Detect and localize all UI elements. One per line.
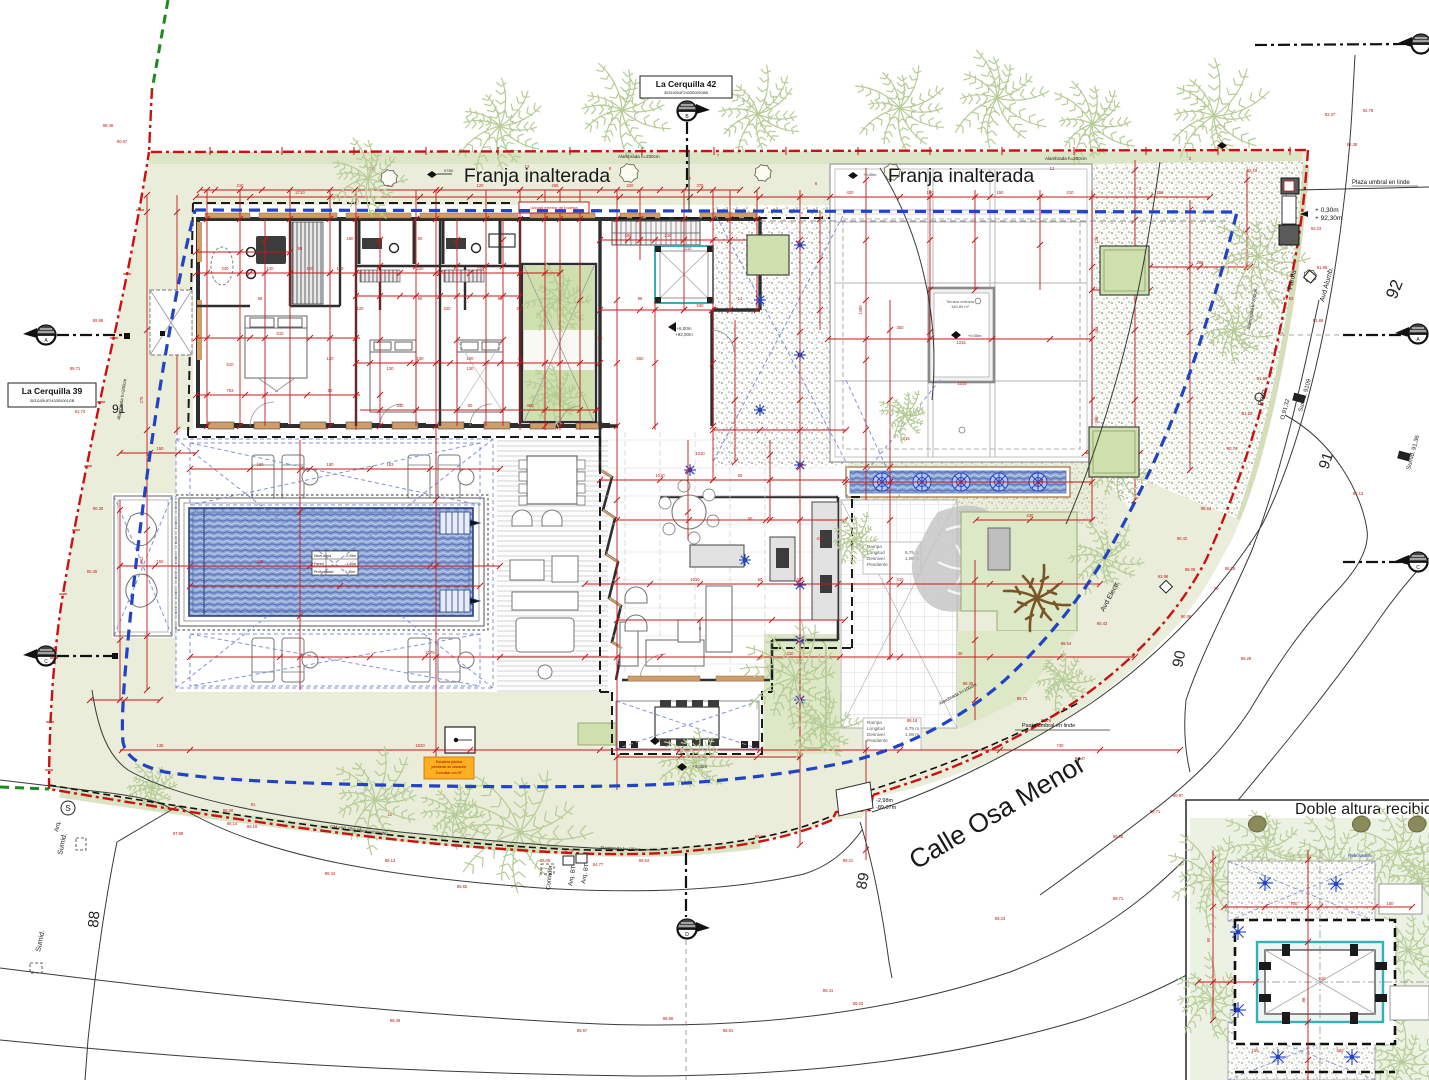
svg-text:120: 120 [327,356,335,361]
svg-text:220: 220 [627,183,635,188]
svg-text:210: 210 [1067,190,1075,195]
svg-text:+0,00m: +0,00m [968,333,982,338]
svg-text:100: 100 [307,266,315,271]
svg-text:89: 89 [853,871,873,890]
svg-text:90: 90 [1206,937,1211,942]
svg-text:Rampa: Rampa [867,720,882,725]
svg-text:90: 90 [468,403,473,408]
svg-text:510: 510 [227,362,235,367]
svg-text:50: 50 [758,577,763,582]
svg-text:50: 50 [748,516,753,521]
svg-text:-0,05m: -0,05m [345,554,356,558]
svg-text:-2,98m: -2,98m [876,798,894,804]
svg-text:88: 88 [1301,997,1306,1002]
svg-text:98.28: 98.28 [1241,656,1252,661]
svg-text:89.23: 89.23 [995,916,1006,921]
svg-text:88.21: 88.21 [843,858,854,863]
svg-text:89.41: 89.41 [823,988,834,993]
svg-text:90: 90 [328,388,333,393]
svg-text:1315: 1315 [957,381,967,386]
svg-text:Franja inalterada: Franja inalterada [888,165,1034,187]
svg-text:90.74: 90.74 [1227,446,1238,451]
svg-text:89.88: 89.88 [93,318,104,323]
svg-text:84.77: 84.77 [593,862,604,867]
svg-text:120: 120 [337,266,345,271]
svg-text:1010: 1010 [655,473,665,478]
svg-text:Rebosadero: Rebosadero [1348,853,1373,858]
svg-text:130: 130 [387,366,395,371]
svg-text:90: 90 [1169,649,1189,669]
svg-text:1010: 1010 [695,451,705,456]
svg-text:210: 210 [665,233,673,238]
svg-text:510: 510 [277,331,285,336]
svg-text:92.37: 92.37 [1325,112,1336,117]
svg-text:210: 210 [685,246,693,251]
svg-text:98.08: 98.08 [1185,567,1196,572]
svg-text:92.10: 92.10 [1247,168,1258,173]
svg-text:163: 163 [387,462,395,467]
svg-text:220: 220 [417,266,425,271]
svg-text:120: 120 [267,266,275,271]
svg-text:375: 375 [697,183,705,188]
svg-text:Profundidad: Profundidad [314,570,333,574]
svg-text:88.55: 88.55 [457,884,468,889]
svg-text:390: 390 [1094,416,1099,424]
svg-text:Pasta umbral en linde: Pasta umbral en linde [1022,723,1075,729]
svg-text:88.19: 88.19 [247,824,258,829]
svg-text:1620: 1620 [415,743,425,748]
svg-text:98.48: 98.48 [103,123,114,128]
svg-text:91.98: 91.98 [1317,265,1328,270]
svg-text:89.71: 89.71 [70,366,81,371]
svg-text:Consultar con DF: Consultar con DF [436,771,462,775]
svg-text:Pendiente: Pendiente [867,738,888,743]
svg-text:220: 220 [444,306,452,311]
svg-text:400: 400 [527,403,535,408]
svg-text:93.98: 93.98 [1158,574,1169,579]
svg-text:91.62: 91.62 [1242,411,1253,416]
svg-text:150: 150 [157,446,165,451]
svg-text:150: 150 [1157,190,1165,195]
svg-text:160: 160 [347,236,355,241]
svg-text:90.57: 90.57 [117,139,128,144]
svg-text:92.38: 92.38 [1347,142,1358,147]
svg-text:90.43: 90.43 [1097,621,1108,626]
svg-text:210: 210 [237,183,245,188]
svg-text:180: 180 [327,462,335,467]
svg-text:30: 30 [958,651,963,656]
svg-text:88.81: 88.81 [723,1028,734,1033]
svg-text:6,75 m: 6,75 m [905,726,919,731]
svg-text:98: 98 [298,246,303,251]
svg-text:3031105UF2433S0001GB: 3031105UF2433S0001GB [30,399,75,403]
svg-text:1315: 1315 [956,340,966,345]
svg-text:88.13: 88.13 [385,858,396,863]
svg-text:410: 410 [787,651,795,656]
svg-text:89.03: 89.03 [853,1001,864,1006]
svg-text:+92,00m: +92,00m [675,332,693,337]
svg-text:1010: 1010 [690,577,700,582]
svg-text:90: 90 [598,336,603,341]
svg-text:Rampa: Rampa [867,544,882,549]
svg-text:88.97: 88.97 [577,1028,588,1033]
svg-text:275: 275 [139,396,144,404]
svg-text:205: 205 [1197,260,1205,265]
svg-text:3031105UF2433S0001BB: 3031105UF2433S0001BB [664,91,709,95]
svg-text:330: 330 [397,403,405,408]
svg-text:135: 135 [157,743,165,748]
svg-text:-89,07m: -89,07m [876,805,897,811]
svg-text:420: 420 [847,190,855,195]
svg-text:La Cerquilla 42: La Cerquilla 42 [656,79,717,89]
svg-text:130: 130 [467,366,475,371]
svg-text:1485: 1485 [858,305,863,315]
svg-text:98.54: 98.54 [1061,641,1072,646]
svg-text:88.18: 88.18 [907,718,918,723]
svg-text:145: 145 [1252,1048,1260,1053]
svg-text:88.68: 88.68 [663,1016,674,1021]
svg-text:S: S [65,804,70,813]
svg-text:240: 240 [222,266,230,271]
svg-text:91: 91 [251,802,256,807]
svg-text:40: 40 [518,356,523,361]
svg-text:100: 100 [1387,901,1395,906]
svg-text:88.34: 88.34 [325,871,336,876]
svg-text:562: 562 [139,556,144,564]
svg-text:Longitud: Longitud [867,726,885,731]
svg-text:90.42: 90.42 [1177,536,1188,541]
svg-text:50: 50 [738,473,743,478]
svg-text:753: 753 [227,388,235,393]
svg-text:90.30: 90.30 [93,506,104,511]
svg-text:2175: 2175 [425,650,435,655]
svg-text:91.83: 91.83 [1283,296,1294,301]
svg-text:88.14: 88.14 [227,821,238,826]
svg-text:485: 485 [1094,326,1099,334]
svg-text:+ 0,30m: + 0,30m [1315,207,1339,214]
svg-text:700: 700 [1291,901,1299,906]
svg-text:125: 125 [1094,236,1099,244]
svg-text:pendiente de ubicación: pendiente de ubicación [432,765,467,769]
svg-text:330: 330 [797,577,805,582]
svg-text:430: 430 [817,536,825,541]
svg-text:183,89 m²: 183,89 m² [951,304,970,309]
svg-text:La Cerquilla 39: La Cerquilla 39 [22,386,83,396]
svg-text:12: 12 [1050,166,1055,171]
svg-text:Plaza umbral en linde: Plaza umbral en linde [1352,180,1410,186]
svg-text:150: 150 [625,233,633,238]
svg-text:C: C [1416,565,1420,571]
svg-text:150: 150 [157,559,165,564]
svg-text:100: 100 [417,356,425,361]
svg-text:160: 160 [257,462,265,467]
svg-text:100: 100 [467,356,475,361]
svg-text:C: C [44,659,48,665]
svg-text:90: 90 [418,236,423,241]
svg-text:Alambrada h=200cm: Alambrada h=200cm [618,154,660,159]
svg-text:91.09: 91.09 [1257,376,1268,381]
svg-text:+0,00m: +0,00m [863,172,877,177]
svg-text:220: 220 [517,306,525,311]
svg-text:91.74: 91.74 [75,409,86,414]
svg-text:510: 510 [1319,976,1327,981]
svg-text:88: 88 [85,910,103,928]
svg-text:Desnivel: Desnivel [867,732,885,737]
svg-text:150: 150 [997,190,1005,195]
svg-text:D: D [685,932,689,938]
svg-text:120: 120 [357,306,365,311]
svg-text:-1,40m: -1,40m [345,562,356,566]
svg-text:530: 530 [697,303,705,308]
svg-text:+0,00m: +0,00m [692,764,707,769]
svg-text:86: 86 [258,296,263,301]
svg-text:91.13: 91.13 [1353,491,1364,496]
svg-text:350: 350 [897,325,905,330]
svg-text:Alambrada h=200cm: Alambrada h=200cm [1045,156,1087,161]
svg-text:89.71: 89.71 [1113,896,1124,901]
svg-text:220: 220 [477,266,485,271]
svg-text:87.98: 87.98 [173,831,184,836]
svg-text:92.76: 92.76 [1363,108,1374,113]
svg-text:Nivel Agua: Nivel Agua [314,554,331,558]
svg-text:90.35: 90.35 [87,569,98,574]
svg-text:88.49: 88.49 [390,1018,401,1023]
svg-text:560: 560 [1337,1048,1345,1053]
svg-text:730: 730 [1057,743,1065,748]
svg-text:14: 14 [738,296,743,301]
svg-text:+6,00m: +6,00m [676,326,691,331]
svg-text:0789: 0789 [444,168,454,173]
svg-text:Desnivel: Desnivel [867,556,885,561]
svg-text:Pendiente: Pendiente [867,562,888,567]
svg-text:Franja inalterada: Franja inalterada [464,165,610,187]
svg-text:92.23: 92.23 [1311,226,1322,231]
svg-text:Escalera piscina: Escalera piscina [436,760,462,764]
svg-text:190: 190 [927,190,935,195]
svg-text:Doble altura recibidor: Doble altura recibidor [1295,801,1429,818]
svg-text:90: 90 [418,296,423,301]
svg-text:550: 550 [637,356,645,361]
svg-text:98.54: 98.54 [1201,506,1212,511]
svg-text:86: 86 [638,296,643,301]
svg-text:+ 92,30m: + 92,30m [1315,215,1342,222]
svg-text:230: 230 [1027,513,1035,518]
svg-text:88.71: 88.71 [1017,696,1028,701]
svg-text:445: 445 [257,559,265,564]
svg-text:86: 86 [498,296,503,301]
svg-text:410: 410 [897,577,905,582]
svg-text:88.63: 88.63 [639,858,650,863]
svg-text:2710: 2710 [295,190,305,195]
svg-text:Pared: Pared [314,562,324,566]
